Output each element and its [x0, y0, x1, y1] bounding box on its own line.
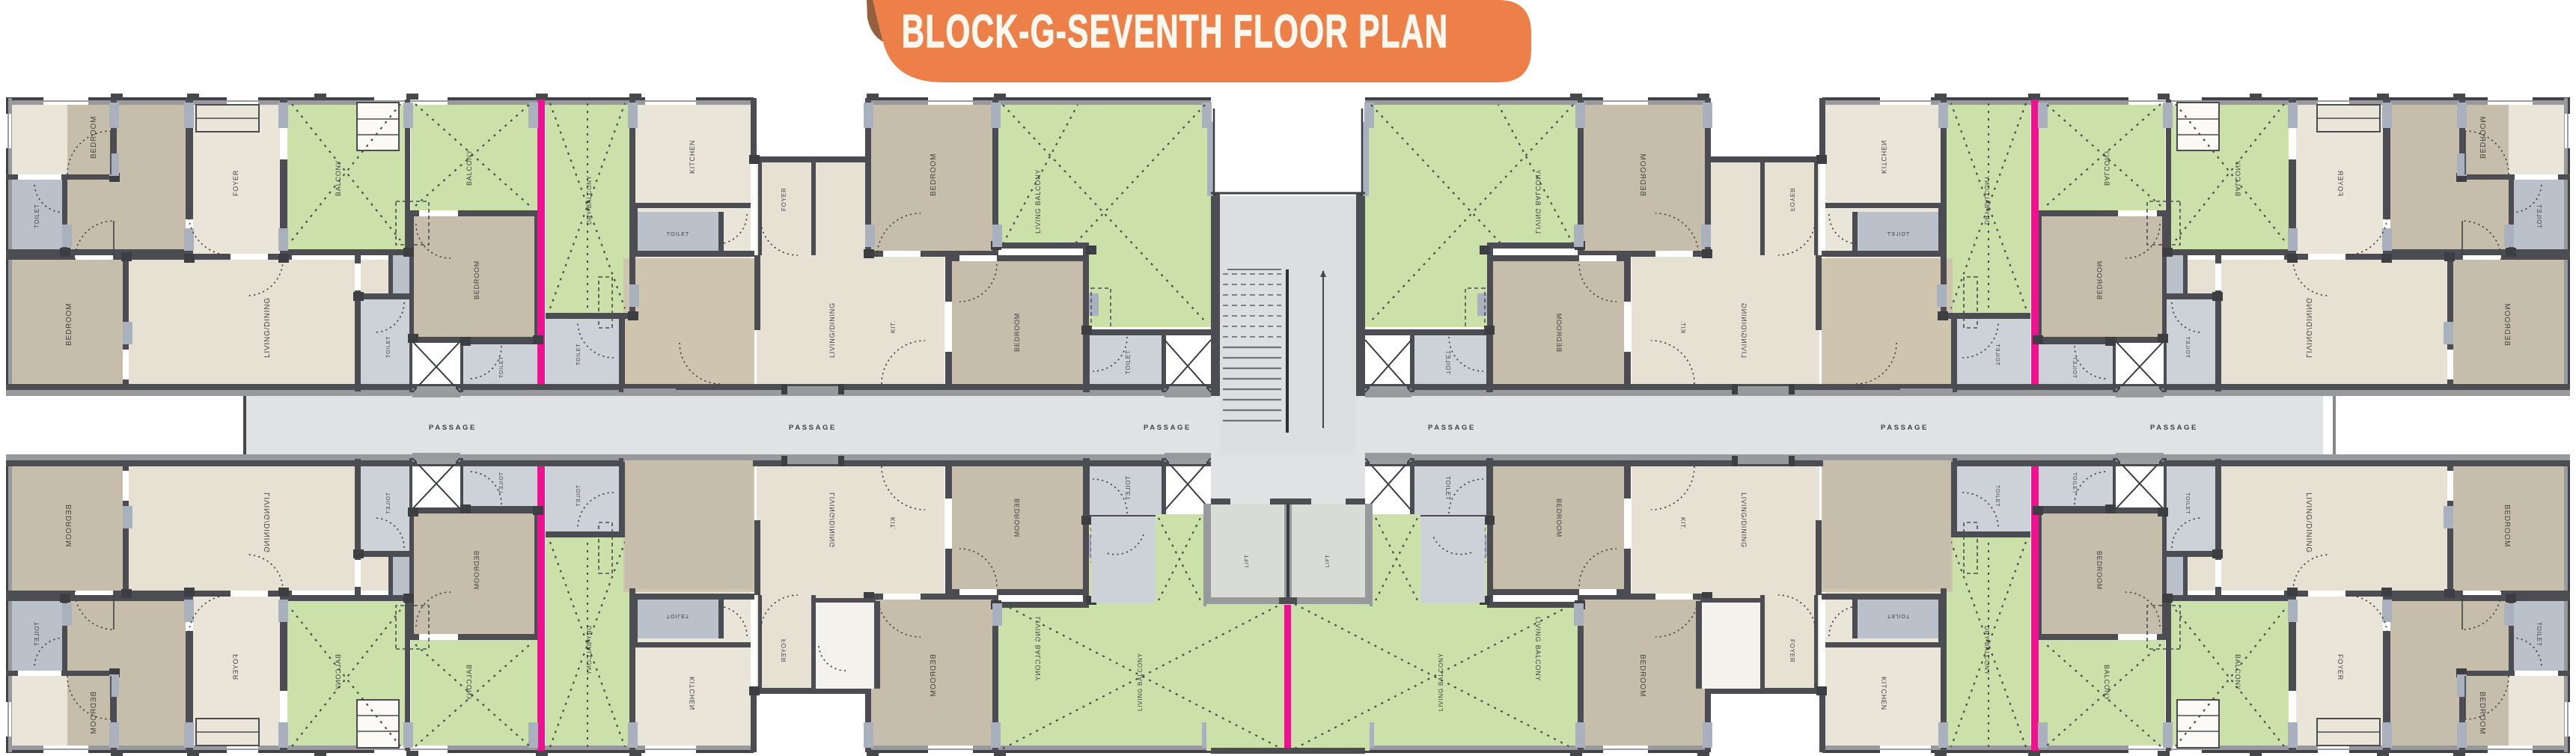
- svg-text:LIFT: LIFT: [1325, 554, 1331, 567]
- svg-text:PASSAGE: PASSAGE: [429, 424, 477, 432]
- svg-text:PASSAGE: PASSAGE: [1881, 424, 1929, 432]
- svg-text:LIVING BALCONY: LIVING BALCONY: [1438, 653, 1444, 711]
- svg-text:PASSAGE: PASSAGE: [1428, 424, 1476, 432]
- svg-text:LIVING BALCONY: LIVING BALCONY: [1137, 653, 1144, 711]
- svg-text:PASSAGE: PASSAGE: [789, 424, 837, 432]
- svg-text:PASSAGE: PASSAGE: [1144, 424, 1191, 432]
- svg-text:BLOCK-G-SEVENTH FLOOR PLAN: BLOCK-G-SEVENTH FLOOR PLAN: [902, 6, 1449, 58]
- svg-text:PASSAGE: PASSAGE: [2150, 424, 2198, 432]
- svg-text:LIFT: LIFT: [1245, 554, 1250, 567]
